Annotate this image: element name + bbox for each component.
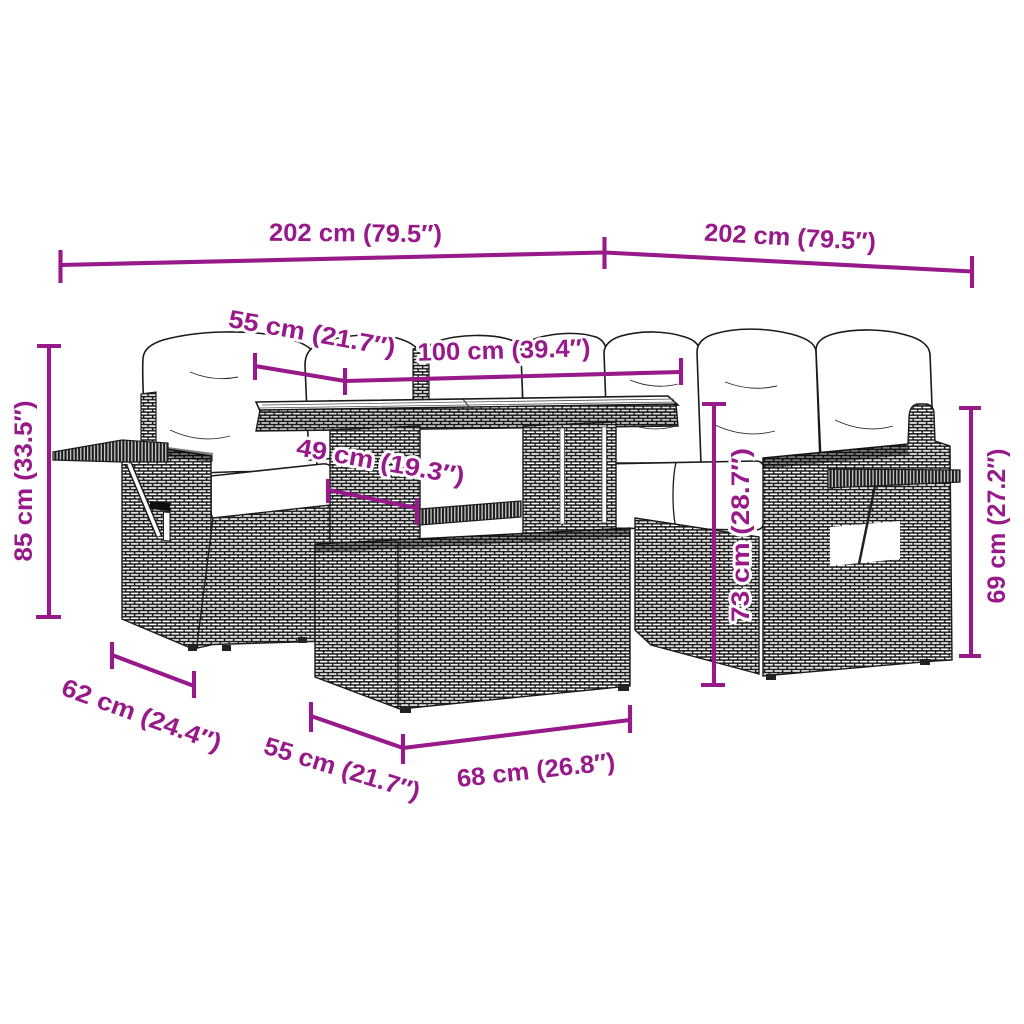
svg-text:85 cm (33.5″): 85 cm (33.5″) bbox=[10, 401, 38, 562]
svg-text:100 cm (39.4″): 100 cm (39.4″) bbox=[417, 334, 591, 367]
svg-text:202 cm (79.5″): 202 cm (79.5″) bbox=[269, 219, 442, 249]
svg-text:69 cm (27.2″): 69 cm (27.2″) bbox=[983, 449, 1011, 604]
svg-text:73 cm (28.7″): 73 cm (28.7″) bbox=[727, 448, 755, 622]
